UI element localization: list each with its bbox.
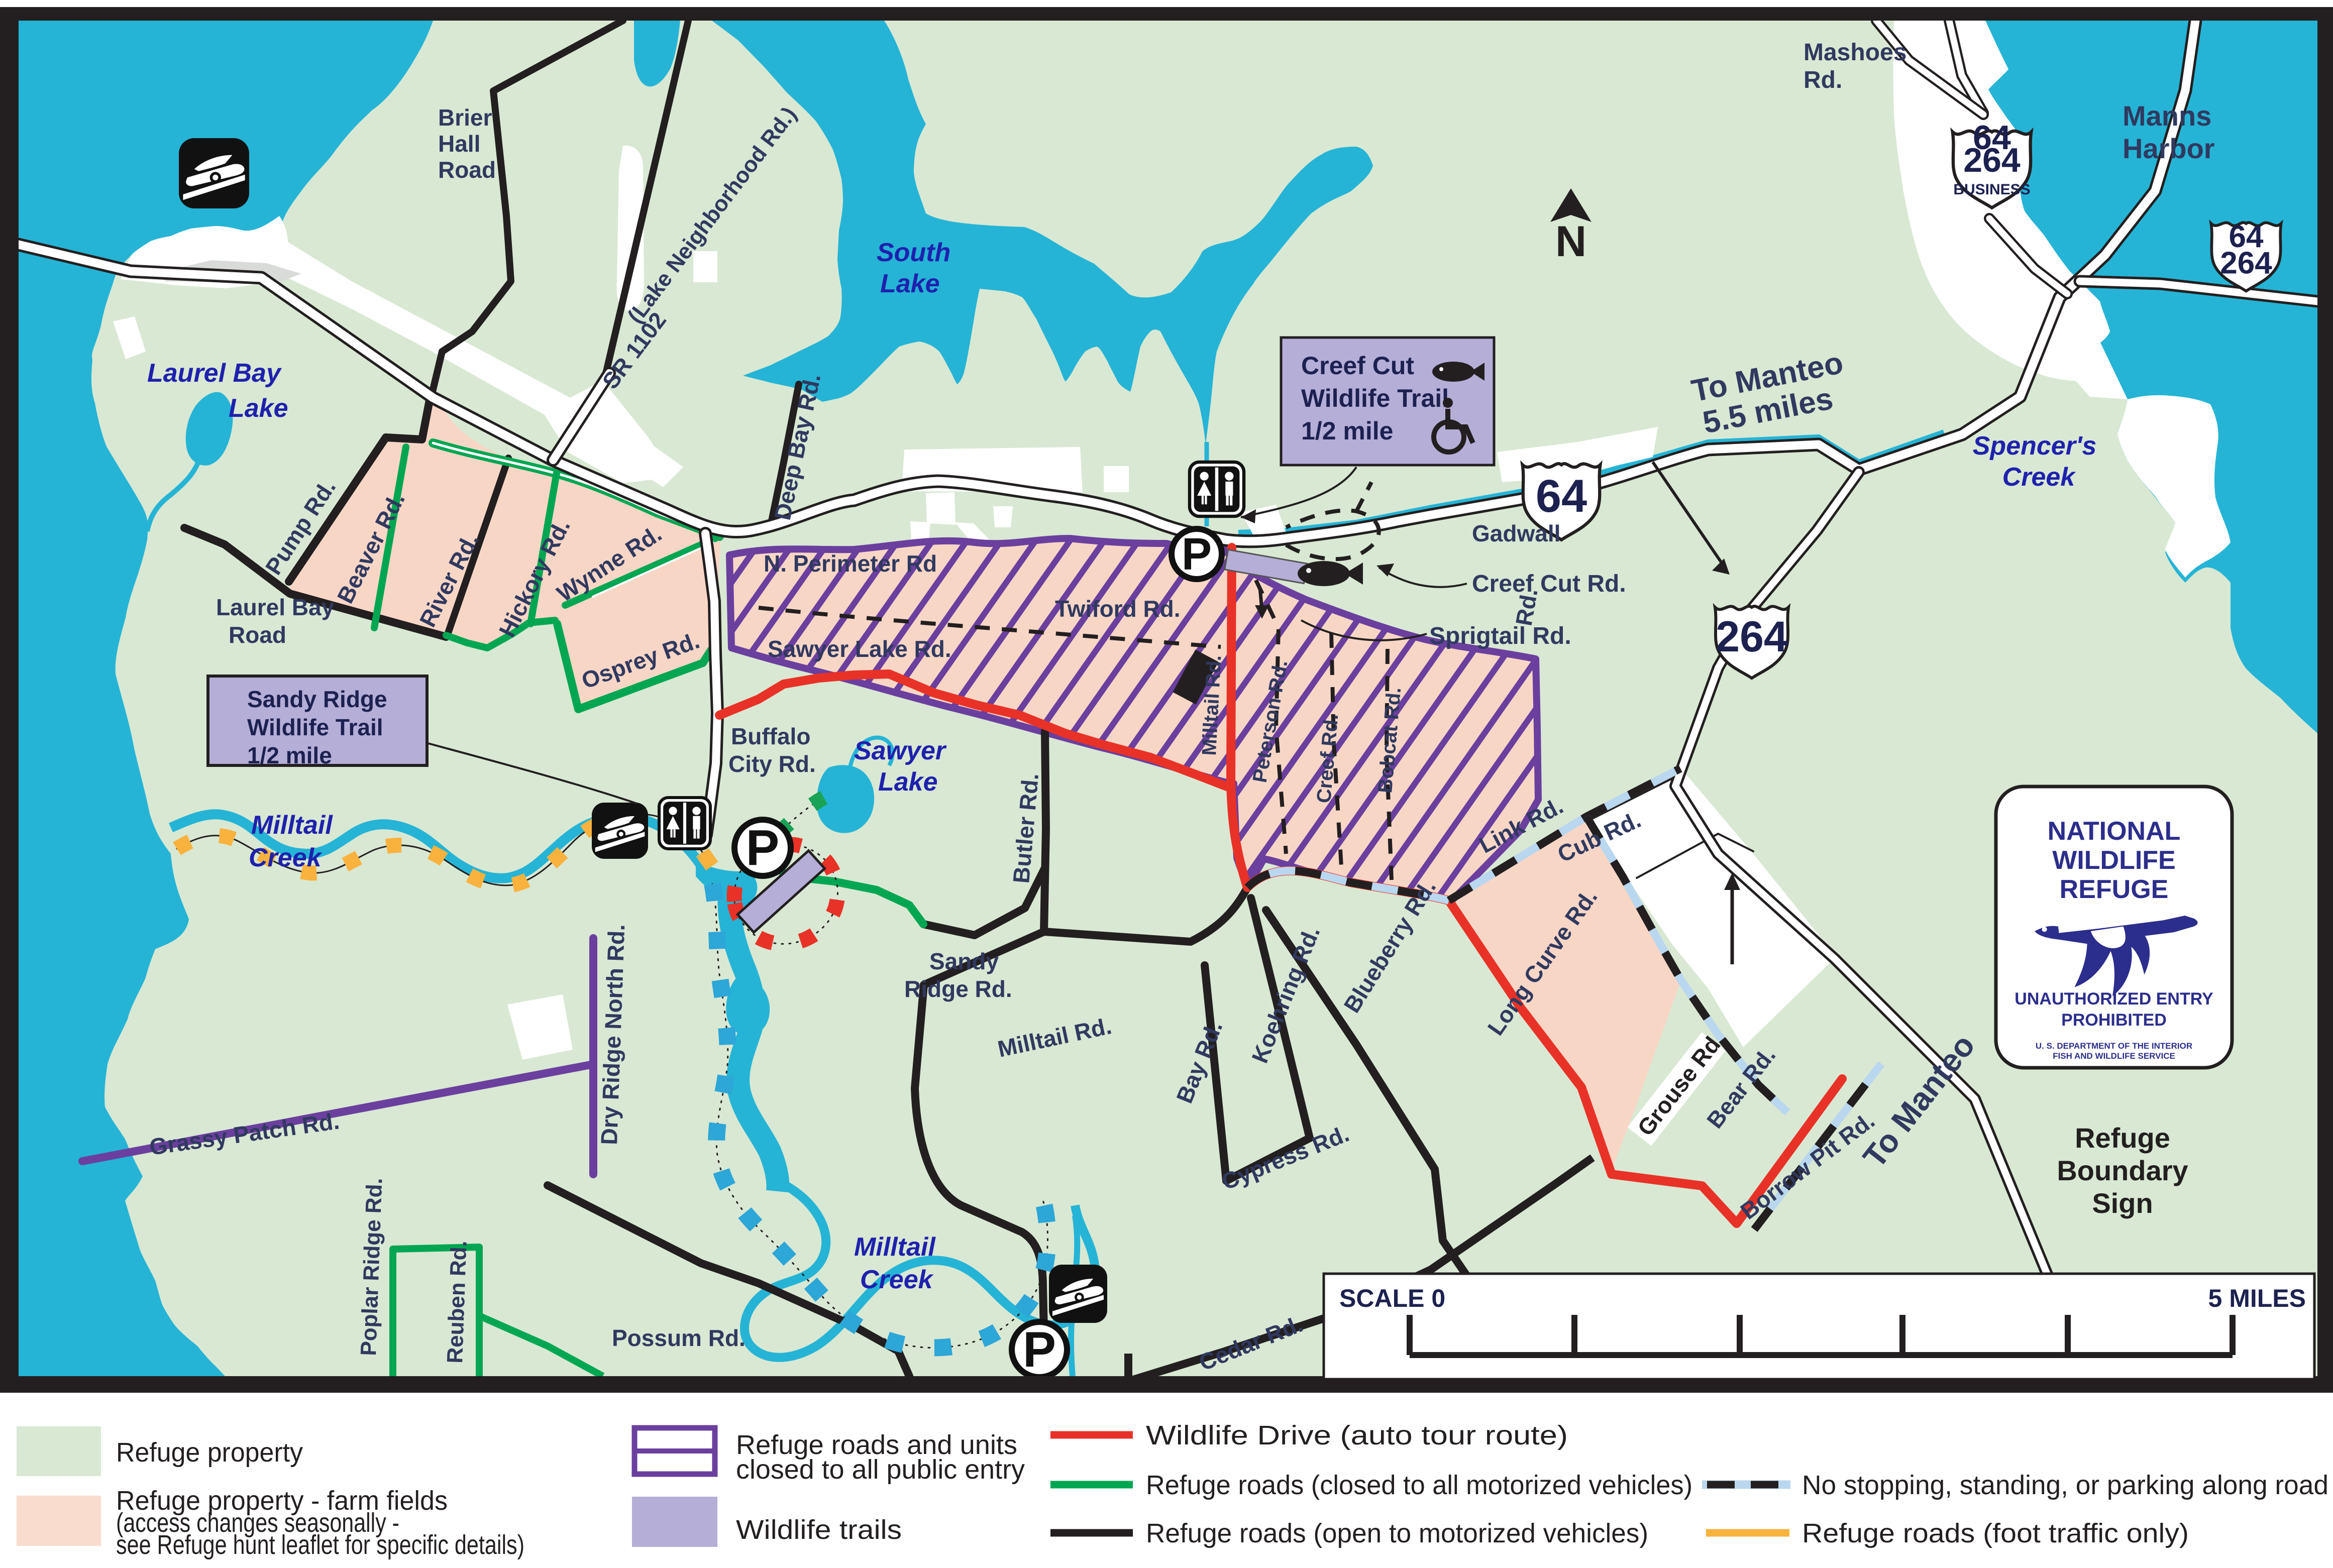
svg-text:Spencer's: Spencer's	[1973, 431, 2097, 461]
svg-text:Sandy Ridge: Sandy Ridge	[247, 686, 387, 712]
svg-text:Refuge roads (closed to all mo: Refuge roads (closed to all motorized ve…	[1146, 1470, 1692, 1500]
svg-text:Sandy: Sandy	[929, 948, 999, 974]
svg-text:Road: Road	[438, 157, 496, 183]
svg-text:see Refuge hunt leaflet for sp: see Refuge hunt leaflet for specific det…	[116, 1530, 524, 1560]
svg-text:P: P	[746, 820, 780, 876]
svg-text:Reuben Rd.: Reuben Rd.	[443, 1240, 472, 1364]
svg-text:Road: Road	[229, 622, 286, 648]
svg-text:Creek: Creek	[860, 1265, 934, 1294]
svg-text:Refuge roads (open to motorize: Refuge roads (open to motorized vehicles…	[1146, 1518, 1648, 1548]
svg-text:P: P	[1023, 1321, 1056, 1377]
svg-text:Sawyer Lake Rd.: Sawyer Lake Rd.	[768, 636, 951, 662]
svg-text:No stopping, standing, or park: No stopping, standing, or parking along …	[1802, 1470, 2328, 1500]
svg-text:Lake: Lake	[880, 269, 940, 298]
svg-text:Creek: Creek	[2002, 463, 2077, 492]
svg-text:Sign: Sign	[2092, 1187, 2153, 1219]
svg-text:Wildlife Trail: Wildlife Trail	[247, 714, 383, 740]
svg-text:Sawyer: Sawyer	[854, 736, 947, 765]
svg-text:Laurel Bay: Laurel Bay	[147, 359, 282, 388]
svg-text:closed to all public entry: closed to all public entry	[736, 1454, 1025, 1485]
svg-text:Brier: Brier	[438, 104, 492, 131]
svg-text:Gadwall: Gadwall	[1472, 520, 1560, 546]
svg-text:Refuge roads (foot traffic onl: Refuge roads (foot traffic only)	[1802, 1518, 2189, 1548]
svg-text:Creek: Creek	[249, 843, 323, 872]
svg-text:Twiford Rd.: Twiford Rd.	[1055, 596, 1181, 622]
svg-text:Manns: Manns	[2123, 100, 2211, 132]
svg-text:SCALE 0: SCALE 0	[1339, 1284, 1445, 1312]
svg-text:REFUGE: REFUGE	[2060, 875, 2169, 904]
svg-text:Milltail: Milltail	[251, 811, 333, 840]
svg-text:Sprigtail Rd.: Sprigtail Rd.	[1429, 623, 1571, 649]
svg-text:N. Perimeter Rd: N. Perimeter Rd	[764, 550, 937, 577]
svg-text:Lake: Lake	[878, 767, 938, 797]
svg-text:WILDLIFE: WILDLIFE	[2052, 846, 2176, 875]
svg-text:1/2 mile: 1/2 mile	[1301, 417, 1393, 445]
svg-text:Wildlife Drive (auto tour rout: Wildlife Drive (auto tour route)	[1146, 1420, 1568, 1450]
svg-text:Mashoes: Mashoes	[1804, 39, 1906, 66]
svg-text:P: P	[1182, 529, 1212, 580]
svg-text:PROHIBITED: PROHIBITED	[2061, 1011, 2167, 1030]
svg-text:1/2 mile: 1/2 mile	[247, 742, 332, 768]
svg-text:Rd.: Rd.	[1804, 67, 1842, 93]
svg-text:NATIONAL: NATIONAL	[2048, 817, 2181, 846]
svg-text:Refuge property: Refuge property	[116, 1437, 303, 1468]
svg-text:Hall: Hall	[438, 131, 480, 157]
svg-text:Harbor: Harbor	[2123, 133, 2215, 164]
svg-text:U. S. DEPARTMENT OF THE INTERI: U. S. DEPARTMENT OF THE INTERIOR	[2036, 1041, 2192, 1051]
svg-text:Laurel Bay: Laurel Bay	[216, 594, 335, 620]
svg-text:Creef Cut: Creef Cut	[1301, 352, 1414, 380]
svg-text:Wildlife trails: Wildlife trails	[736, 1515, 902, 1545]
svg-text:Ridge Rd.: Ridge Rd.	[904, 976, 1012, 1002]
svg-text:South: South	[877, 238, 950, 267]
svg-text:Lake: Lake	[229, 394, 288, 423]
svg-text:Buffalo: Buffalo	[731, 723, 810, 749]
svg-text:Milltail: Milltail	[854, 1233, 936, 1262]
svg-text:N: N	[1555, 217, 1586, 266]
svg-text:64: 64	[1536, 471, 1587, 522]
svg-text:Possum Rd.: Possum Rd.	[612, 1325, 746, 1351]
svg-text:264: 264	[1963, 141, 2021, 179]
svg-text:5 MILES: 5 MILES	[2208, 1284, 2306, 1312]
svg-text:Boundary: Boundary	[2057, 1155, 2188, 1186]
svg-text:Creef Cut Rd.: Creef Cut Rd.	[1472, 571, 1626, 597]
svg-text:FISH AND WILDLIFE SERVICE: FISH AND WILDLIFE SERVICE	[2053, 1051, 2175, 1061]
svg-text:BUSINESS: BUSINESS	[1953, 181, 2030, 198]
svg-text:City Rd.: City Rd.	[728, 751, 816, 777]
svg-text:264: 264	[2220, 246, 2272, 281]
svg-text:UNAUTHORIZED ENTRY: UNAUTHORIZED ENTRY	[2014, 989, 2213, 1009]
svg-text:264: 264	[1716, 613, 1788, 661]
svg-text:Refuge: Refuge	[2075, 1122, 2170, 1154]
svg-text:Wildlife Trail: Wildlife Trail	[1301, 384, 1449, 412]
